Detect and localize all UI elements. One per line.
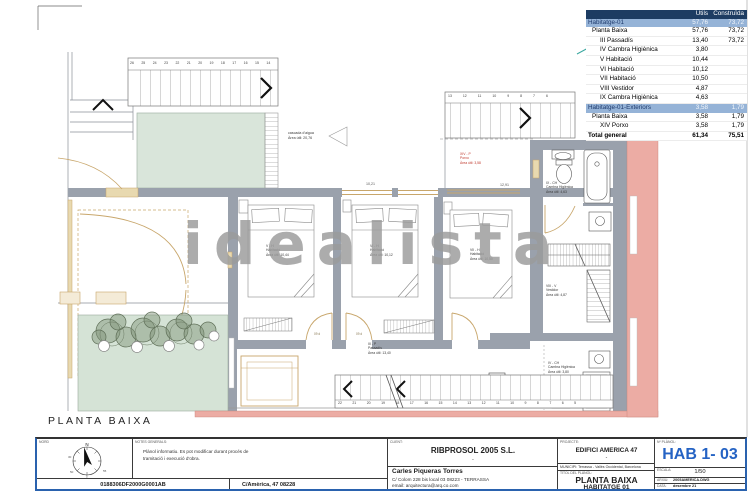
row-label: XIV Porxo: [586, 122, 681, 132]
row-label: Habitatge-01: [586, 19, 681, 28]
compass-tick-number: 50: [70, 470, 74, 474]
row-utils: 4,87: [681, 84, 711, 94]
row-label: VIII Vestidor: [586, 84, 681, 94]
row-label: Planta Baixa: [586, 27, 681, 36]
date-label: DATA:: [657, 484, 666, 488]
porxo-label: XIV - P Porxo Àrea útil: 3,58: [460, 152, 481, 165]
project-cell: PROJECTE: EDIFICI AMERICA 47 - MUNICIPI:…: [558, 439, 655, 489]
row-construida: [711, 55, 747, 65]
dimension-label: 12,91: [500, 183, 509, 187]
row-construida: [711, 75, 747, 85]
site-address-text: C/Amèrica, 47 08228: [242, 482, 295, 488]
row-utils: 3,58: [681, 103, 711, 112]
stair-numbers-bottom: 22 21 20 19 18 17 16 15 14 13 12 11 10 9…: [338, 401, 612, 405]
table-row: Habitatge-0157,7673,72: [586, 19, 747, 28]
compass-cell: NORD N 30 50 5 55: [37, 439, 133, 478]
sheet-label: Nº PLÀNOL:: [657, 440, 676, 444]
table-row: VIII Vestidor4,87: [586, 84, 747, 94]
compass-rose: N 30 50 5 55: [37, 439, 133, 478]
row-construida: [711, 84, 747, 94]
table-row: V Habitació10,44: [586, 55, 747, 65]
door-tag: 09 d: [356, 332, 362, 336]
table-row: IV Cambra Higiènica3,80: [586, 46, 747, 56]
row-construida: [711, 65, 747, 75]
row-label: VI Habitació: [586, 65, 681, 75]
table-header-row: Útils Construïda: [586, 10, 747, 19]
row-label: Total general: [586, 131, 681, 141]
architect-address: C/ Colom 228 bis local 03 08223 - TERRAS…: [392, 477, 489, 482]
compass-tick-number: 55: [103, 469, 107, 473]
row-construida: 73,72: [711, 36, 747, 46]
client-label: CLIENT:: [390, 440, 403, 444]
row-utils: 10,50: [681, 75, 711, 85]
row-construida: 73,72: [711, 27, 747, 36]
row-construida: 75,51: [711, 131, 747, 141]
client-name: RIBPROSOL 2005 S.L.: [388, 446, 558, 455]
row-utils: 57,76: [681, 19, 711, 28]
slope-triangle: [329, 127, 347, 146]
row-utils: 3,80: [681, 46, 711, 56]
row-label: III Passadís: [586, 36, 681, 46]
row-construida: 73,72: [711, 19, 747, 28]
table-header-construida: Construïda: [711, 10, 747, 19]
pool-label: cascada d'aigua Àrea útil: 20,76: [288, 131, 314, 140]
sheet-number: HAB 1- 03: [655, 446, 745, 464]
row-utils: 3,58: [681, 122, 711, 132]
table-row: IX Cambra Higiènica4,63: [586, 94, 747, 104]
idealista-watermark: idealista: [183, 210, 563, 278]
dimension-label: 10,21: [366, 182, 375, 186]
table-row: VI Habitació10,12: [586, 65, 747, 75]
row-label: IV Cambra Higiènica: [586, 46, 681, 56]
compass-cell-label: NORD: [39, 440, 49, 444]
title-block: NORD N 30 50 5 55 NOTES GENERALS: Plànol…: [35, 437, 747, 491]
municipality: MUNICIPI: Terrassa - Vallès Occidental, …: [560, 465, 654, 469]
corridor-label: III - P Passadís Àrea útil: 13,40: [368, 342, 391, 355]
door-tag: 09 d: [314, 332, 320, 336]
table-row: XIV Porxo3,581,79: [586, 122, 747, 132]
notes-cell: NOTES GENERALS: Plànol informatiu. Es po…: [133, 439, 388, 478]
table-row: Habitatge-01-Exteriors3,581,79: [586, 103, 747, 112]
table-row: III Passadís13,4073,72: [586, 36, 747, 46]
table-row: Planta Baixa3,581,79: [586, 113, 747, 122]
project-name: EDIFICI AMERICA 47: [558, 447, 655, 454]
bath-top-label: IX - CH Cambra Higiènica Àrea útil: 4,63: [546, 181, 573, 194]
row-utils: 3,58: [681, 113, 711, 122]
table-header-utils: Útils: [681, 10, 711, 19]
table-row: Planta Baixa57,7673,72: [586, 27, 747, 36]
row-label: IX Cambra Higiènica: [586, 94, 681, 104]
client-cell: CLIENT: RIBPROSOL 2005 S.L. - Carles Piq…: [388, 439, 558, 489]
vestidor-label: VIII - V Vestidor Àrea útil: 4,87: [546, 284, 567, 297]
sheet-cell: Nº PLÀNOL: HAB 1- 03 ESCALA: 1/50 ARXIU:…: [655, 439, 745, 489]
row-construida: 1,79: [711, 103, 747, 112]
project-dash: -: [558, 455, 655, 461]
table-total-row: Total general61,3475,51: [586, 131, 747, 141]
row-utils: 57,76: [681, 27, 711, 36]
architect-email: email: arquitectura@arq.co.com: [392, 483, 459, 488]
site-address: C/Amèrica, 47 08228: [230, 479, 388, 489]
row-label: V Habitació: [586, 55, 681, 65]
row-utils: 4,63: [681, 94, 711, 104]
stair-numbers-top: 26 25 24 23 22 21 20 19 18 17 16 15 14: [130, 61, 278, 65]
architect-name: Carles Piqueras Torres: [392, 468, 463, 475]
stair-up-arrow: [93, 100, 113, 110]
scale-value: 1/50: [655, 469, 745, 475]
notes-label: NOTES GENERALS:: [135, 440, 167, 444]
row-label: Planta Baixa: [586, 113, 681, 122]
corridor-furniture: [241, 356, 298, 406]
plan-title: PLANTA BAIXA: [48, 415, 153, 427]
file-label: ARXIU:: [657, 478, 668, 482]
row-label: VII Habitació: [586, 75, 681, 85]
cadastral-reference: 0188306DF2000G0001AB: [37, 479, 230, 489]
cadastral-reference-text: 0188306DF2000G0001AB: [100, 482, 165, 488]
row-utils: 61,34: [681, 131, 711, 141]
titleblock-plan-subtitle: HABITATGE 01: [558, 484, 655, 490]
bath-bottom-label: IV - CH Cambra Higiènica Àrea útil: 3,80: [548, 361, 575, 374]
file-value: 2005AMERICA.DWG: [673, 478, 710, 482]
row-construida: 1,79: [711, 113, 747, 122]
row-utils: 13,40: [681, 36, 711, 46]
table-row: VII Habitació10,50: [586, 75, 747, 85]
row-construida: [711, 46, 747, 56]
stair-numbers-top-right: 13 12 11 10 9 8 7 6: [448, 94, 574, 98]
row-label: Habitatge-01-Exteriors: [586, 103, 681, 112]
compass-north-label: N: [85, 442, 88, 447]
staircase-top: [128, 58, 278, 106]
compass-tick-number: 30: [68, 455, 72, 459]
row-utils: 10,44: [681, 55, 711, 65]
area-summary-table: Útils Construïda Habitatge-0157,7673,72 …: [586, 10, 747, 141]
reference-row: 0188306DF2000G0001AB C/Amèrica, 47 08228: [37, 478, 388, 489]
row-construida: [711, 94, 747, 104]
notes-text: Plànol informatiu. Es pot modificar dura…: [143, 449, 248, 463]
row-utils: 10,12: [681, 65, 711, 75]
project-label: PROJECTE:: [560, 440, 579, 444]
date-value: desembre 21: [673, 484, 696, 488]
client-dash: -: [388, 457, 558, 463]
row-construida: 1,79: [711, 122, 747, 132]
table-header-empty: [586, 10, 681, 19]
